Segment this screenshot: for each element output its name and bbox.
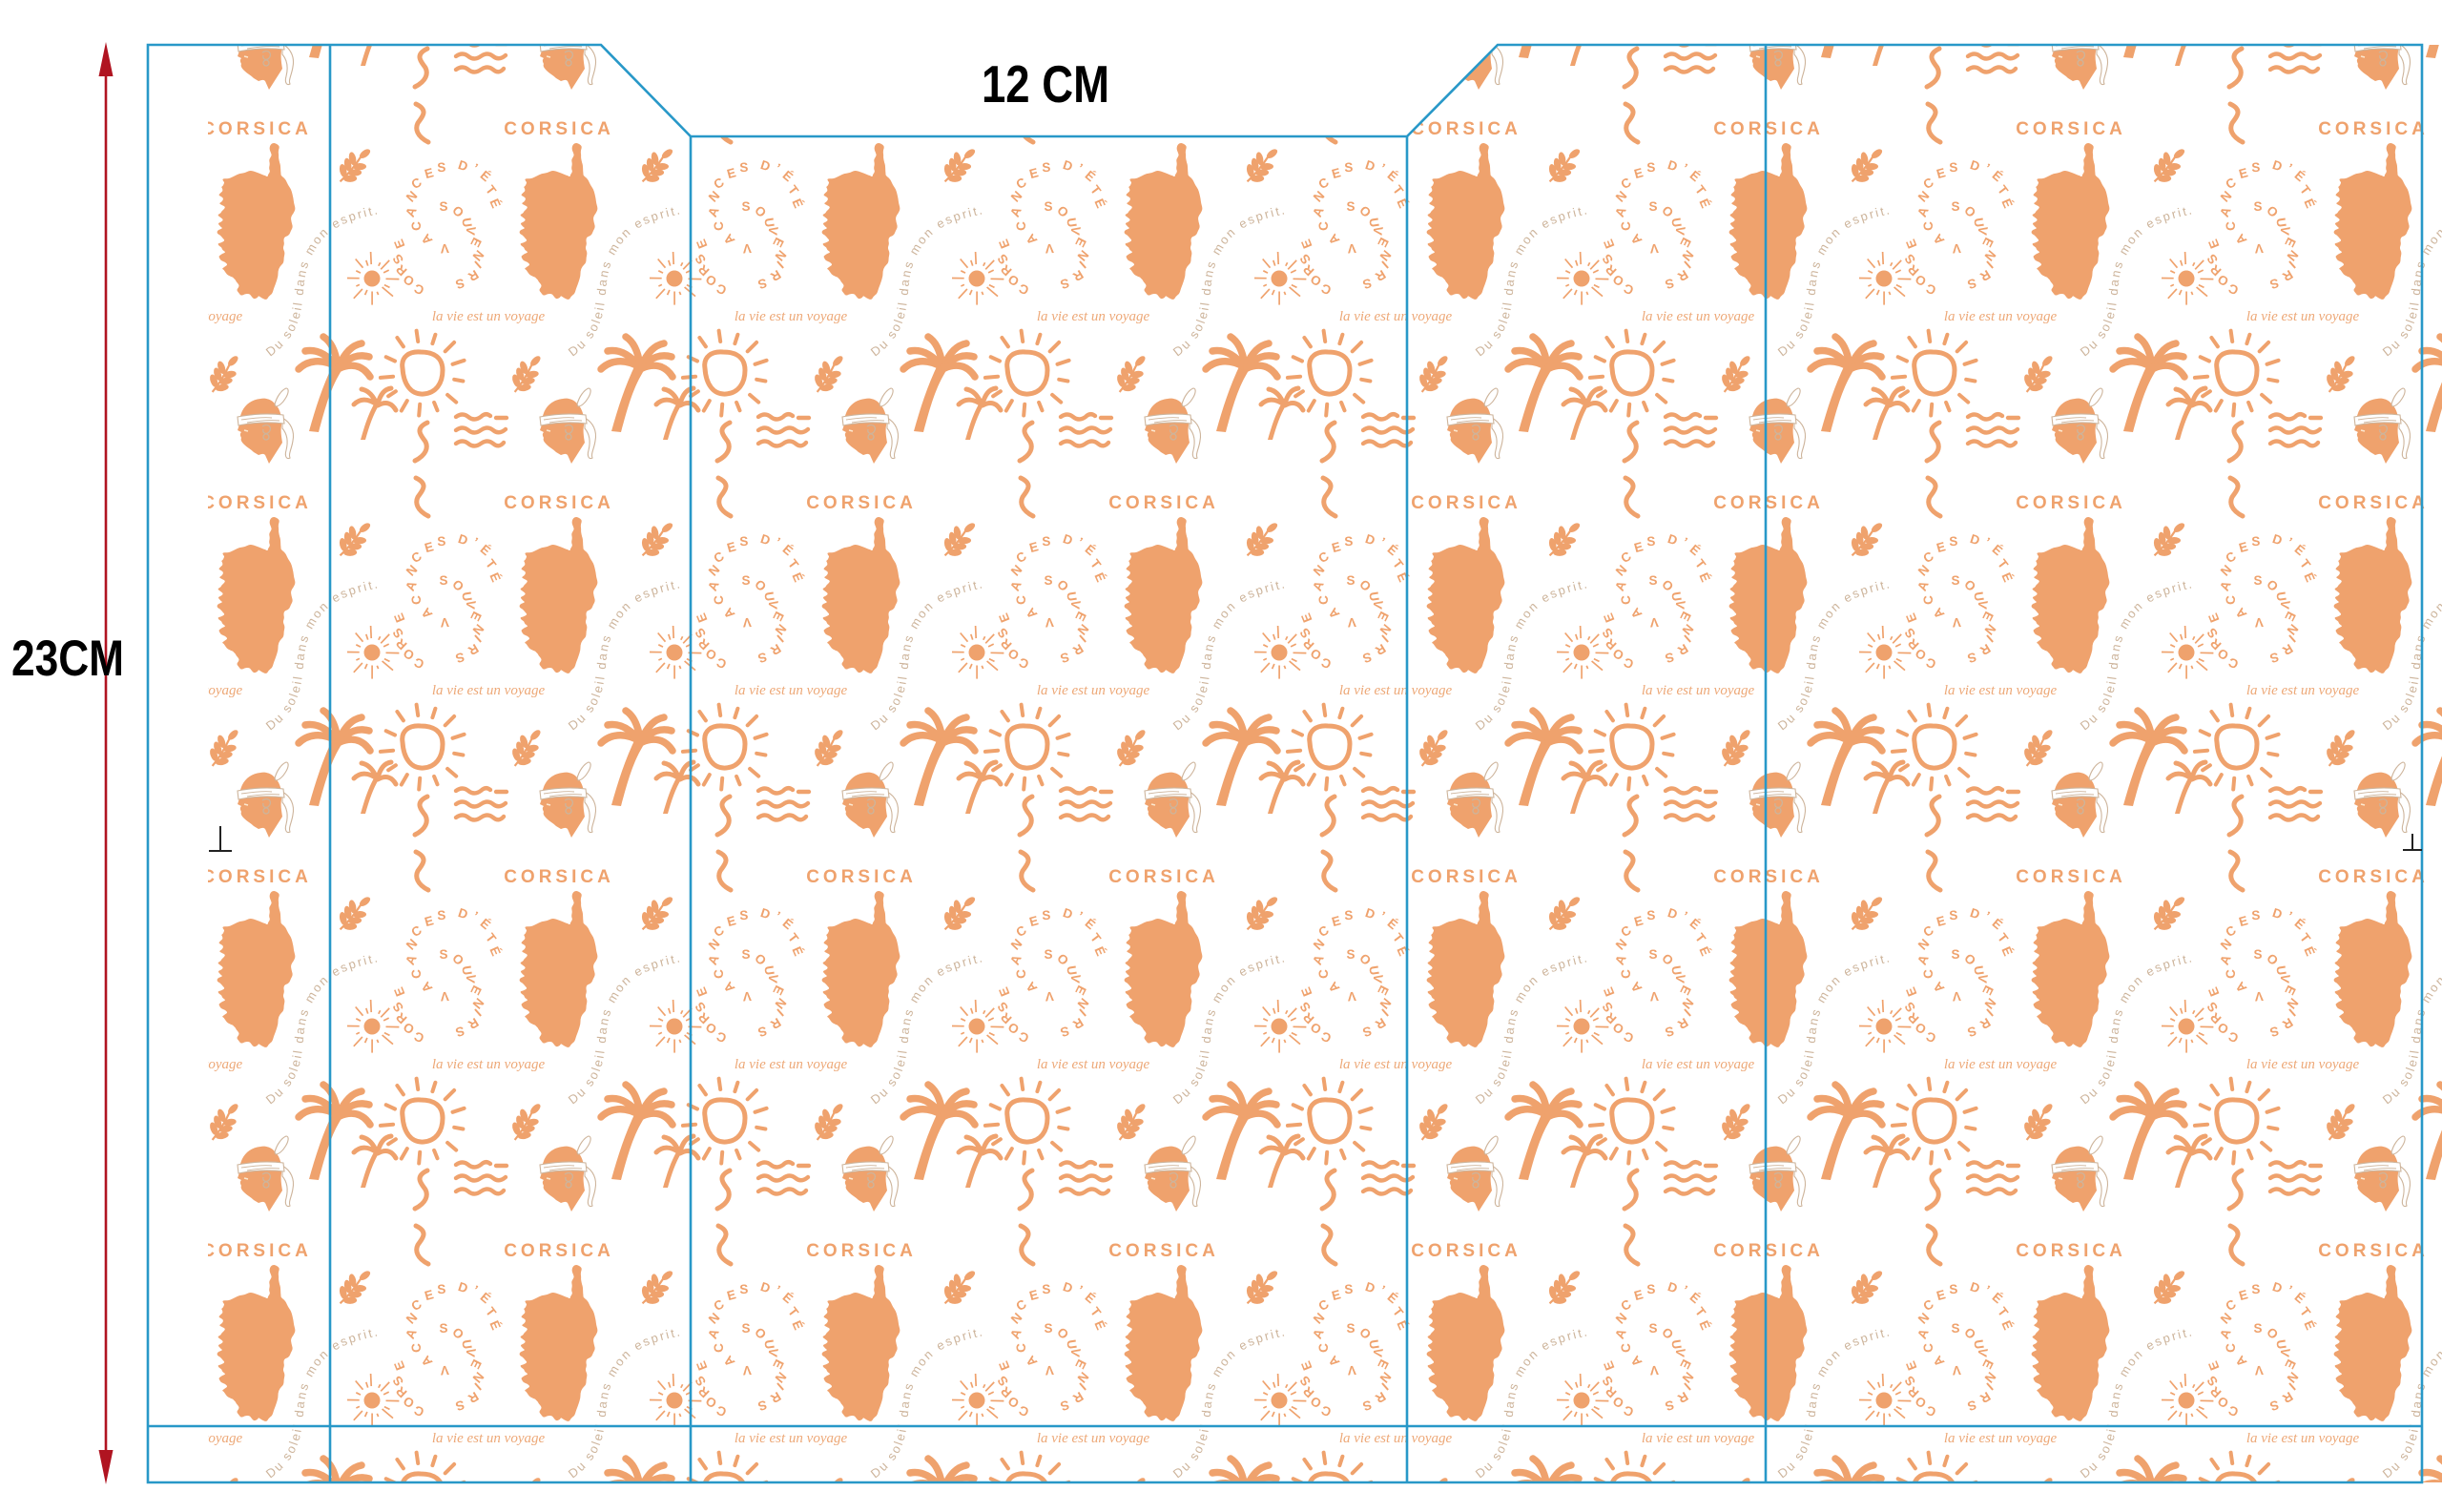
svg-text:12 CM: 12 CM	[982, 54, 1109, 114]
svg-text:23CM: 23CM	[11, 631, 124, 687]
